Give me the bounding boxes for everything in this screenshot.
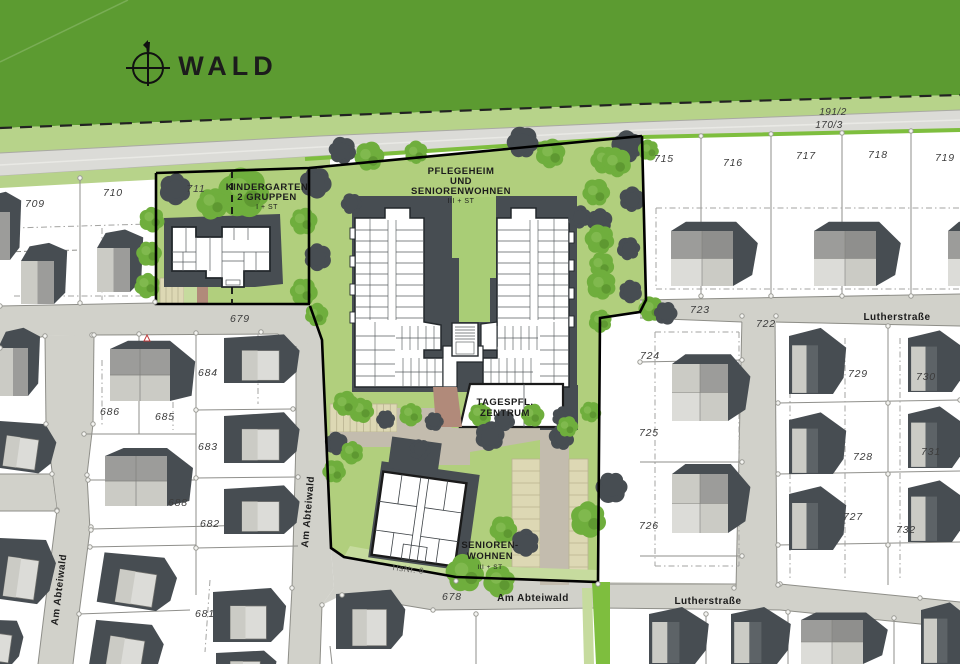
svg-text:III + ST: III + ST (448, 198, 475, 205)
svg-text:725: 725 (639, 427, 659, 439)
svg-text:729: 729 (848, 368, 868, 380)
svg-text:WALD: WALD (178, 51, 277, 81)
svg-text:SENIORENWOHNEN: SENIORENWOHNEN (411, 186, 511, 197)
svg-text:726: 726 (639, 520, 659, 532)
svg-text:TAGESPFL.: TAGESPFL. (476, 397, 533, 408)
svg-text:ZENTRUM: ZENTRUM (480, 408, 530, 419)
svg-text:722: 722 (756, 318, 776, 330)
svg-text:2 GRUPPEN: 2 GRUPPEN (237, 192, 296, 203)
svg-text:684: 684 (198, 367, 218, 379)
svg-text:SENIOREN-: SENIOREN- (461, 540, 518, 551)
svg-text:WOHNEN: WOHNEN (467, 551, 513, 562)
svg-text:723: 723 (690, 304, 710, 316)
svg-text:718: 718 (868, 149, 888, 161)
svg-text:Lutherstraße: Lutherstraße (674, 596, 741, 607)
svg-text:715: 715 (654, 153, 674, 165)
svg-text:678: 678 (442, 591, 462, 603)
svg-text:717: 717 (796, 150, 816, 162)
svg-text:Lutherstraße: Lutherstraße (863, 312, 930, 323)
svg-text:728: 728 (853, 451, 873, 463)
svg-text:683: 683 (198, 441, 218, 453)
svg-text:682: 682 (200, 518, 220, 530)
svg-text:Am Abteiwald: Am Abteiwald (497, 593, 569, 604)
svg-text:III + ST: III + ST (477, 564, 502, 571)
svg-text:170/3: 170/3 (815, 120, 843, 131)
svg-text:727: 727 (843, 511, 863, 523)
svg-text:I + ST: I + ST (256, 204, 278, 211)
svg-text:686: 686 (100, 406, 120, 418)
svg-text:685: 685 (155, 411, 175, 423)
svg-text:688: 688 (168, 497, 188, 509)
svg-text:711: 711 (186, 183, 205, 195)
svg-text:732: 732 (896, 524, 916, 536)
svg-text:719: 719 (935, 152, 955, 164)
svg-text:716: 716 (723, 157, 743, 169)
svg-text:710: 710 (103, 187, 123, 199)
svg-text:681: 681 (195, 608, 215, 620)
svg-text:730: 730 (916, 371, 936, 383)
svg-text:731: 731 (921, 446, 941, 458)
svg-text:709: 709 (25, 198, 45, 210)
svg-text:679: 679 (230, 313, 250, 325)
svg-text:724: 724 (640, 350, 660, 362)
svg-text:191/2: 191/2 (819, 107, 847, 118)
